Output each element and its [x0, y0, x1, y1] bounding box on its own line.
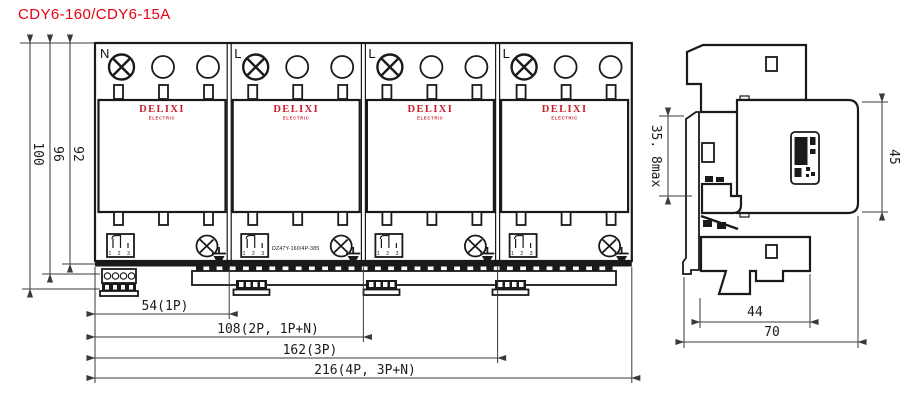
dim-100-label: 100: [30, 142, 45, 165]
terminal-label-l1: L: [234, 46, 241, 61]
dim-216-label: 216(4P, 3P+N): [314, 363, 416, 378]
terminal-block-3: [364, 280, 400, 295]
lower-arm: [701, 237, 810, 294]
drawing-page: DELIXI ELECTRIC 1 2 3 CDY6-160/CDY6-15A: [0, 0, 900, 412]
dim-54-label: 54(1P): [142, 299, 189, 314]
dim-70-label: 70: [764, 325, 780, 340]
product-label: [791, 132, 819, 184]
terminal-label-n: N: [100, 46, 109, 61]
lower-arm-slot: [766, 245, 777, 258]
terminal-block-1: [100, 269, 138, 296]
din-rail-assembly: [100, 266, 616, 296]
terminal-label-l2: L: [368, 46, 375, 61]
dim-108-label: 108(2P, 1P+N): [217, 322, 319, 337]
upper-arm-slot: [766, 57, 777, 71]
dim-96-label: 96: [50, 146, 65, 162]
terminal-label-l3: L: [503, 46, 510, 61]
dim-358max-label: 35. 8max: [648, 125, 663, 188]
front-view: N L L L DZ47Y-160/4P-385: [95, 43, 632, 267]
side-view: [683, 45, 858, 294]
dim-92-label: 92: [70, 146, 85, 162]
device-base-bar: [95, 261, 632, 267]
technical-drawing: DELIXI ELECTRIC 1 2 3 CDY6-160/CDY6-15A: [0, 0, 900, 412]
dim-45-label: 45: [886, 149, 900, 165]
page-title: CDY6-160/CDY6-15A: [18, 6, 171, 23]
terminal-block-2: [234, 280, 270, 295]
dim-162-label: 162(3P): [283, 343, 338, 358]
clip-vent: [702, 143, 714, 162]
rail-back-plate: [683, 112, 699, 274]
din-clip-latch: [702, 184, 741, 213]
dim-44-label: 44: [747, 305, 763, 320]
model-number: DZ47Y-160/4P-385: [272, 246, 319, 252]
